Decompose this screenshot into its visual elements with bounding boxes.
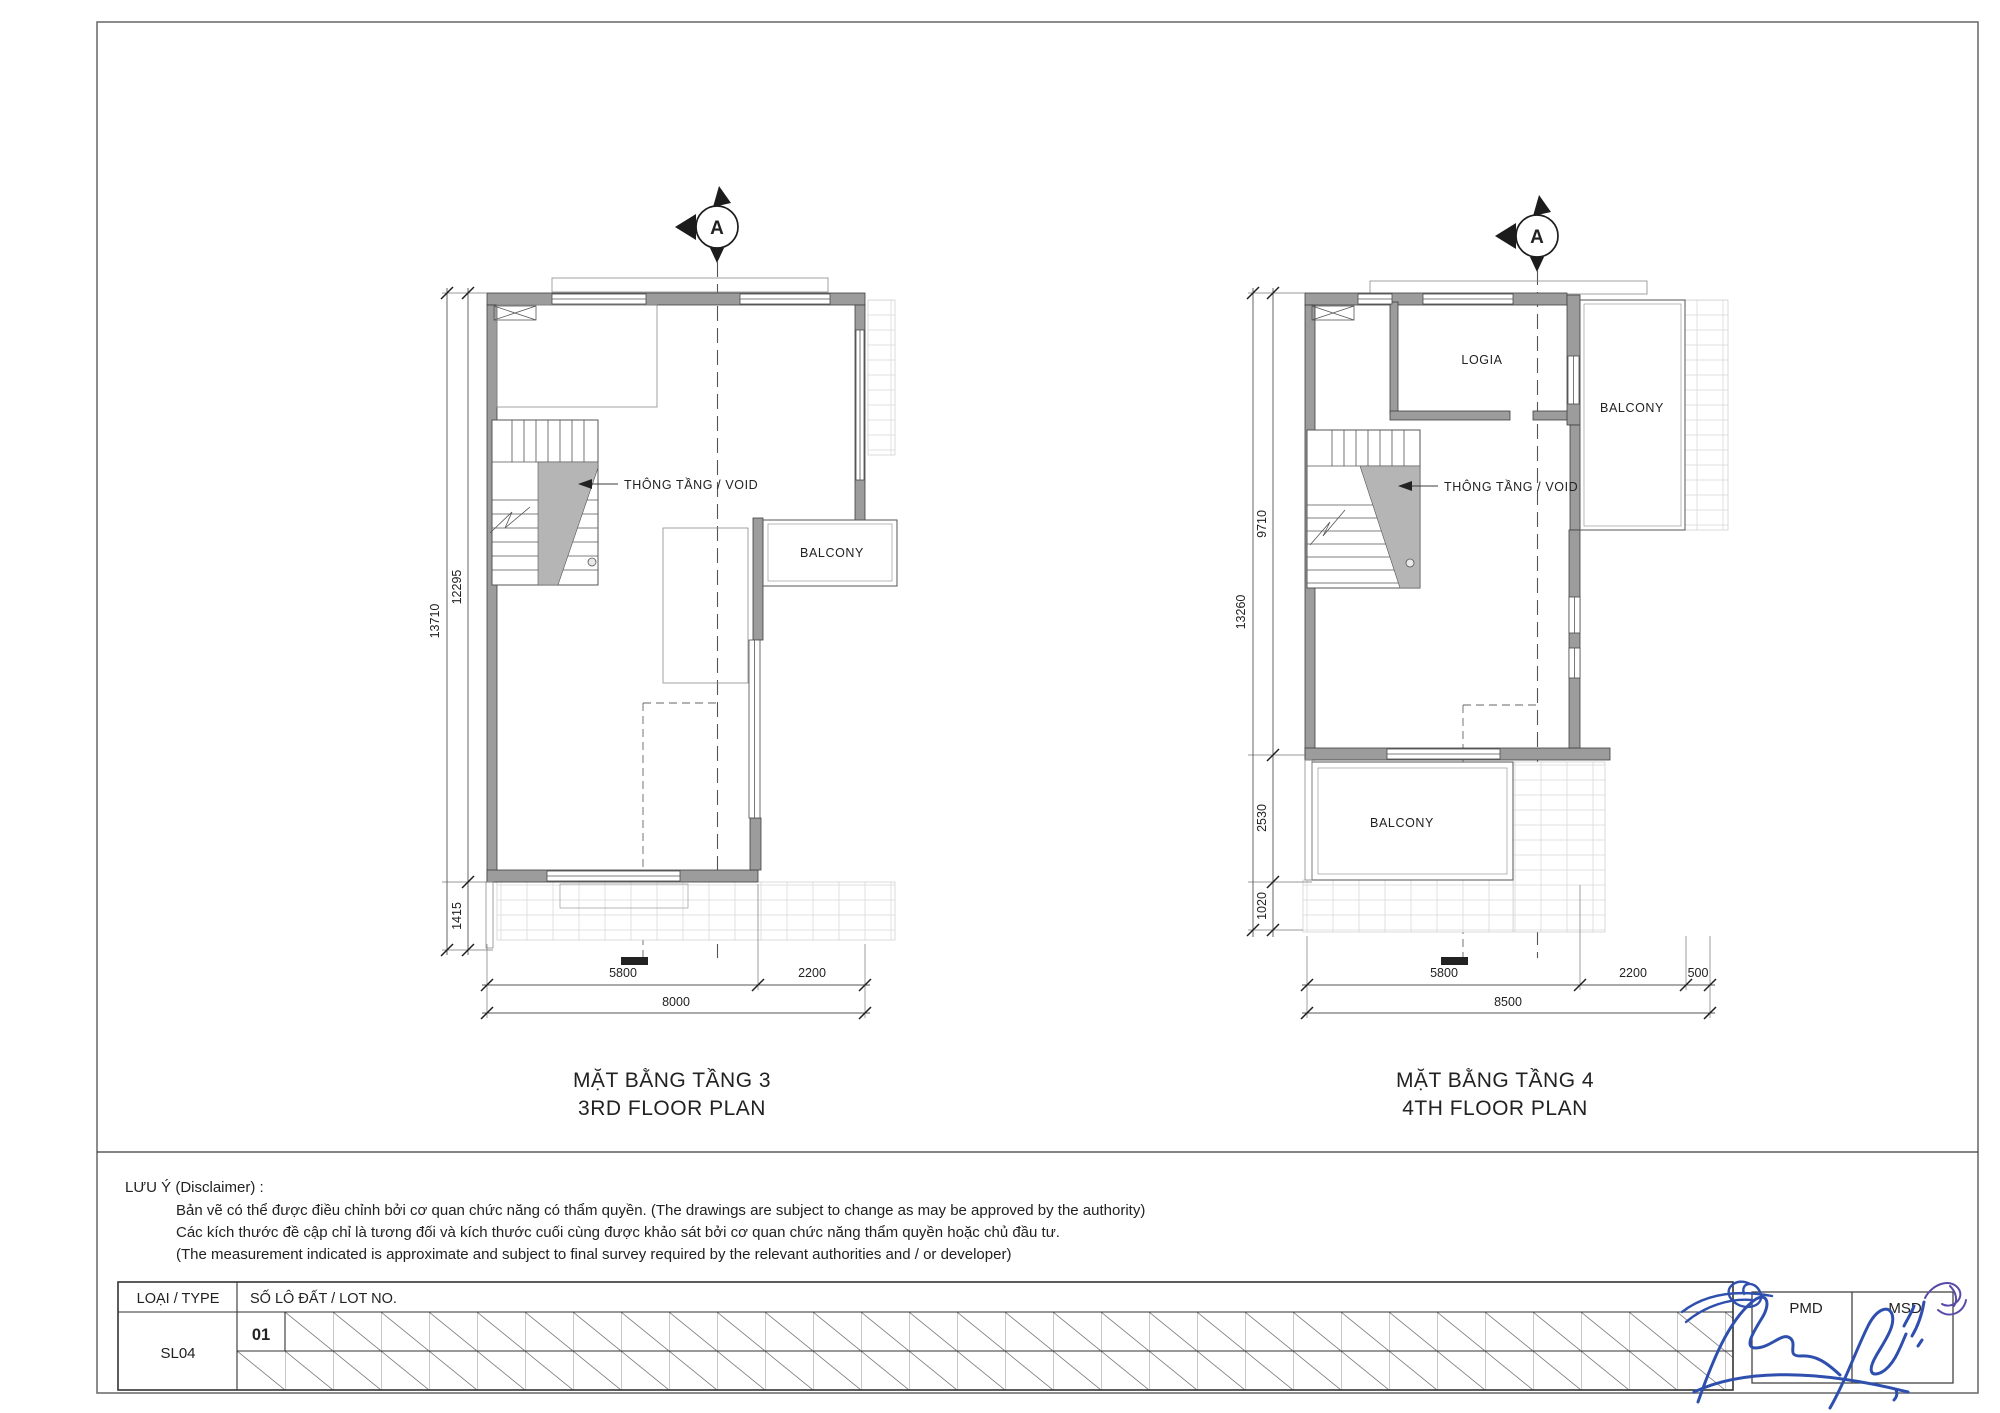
disclaimer-line-2: Các kích thước đề cập chỉ là tương đối v… bbox=[176, 1224, 1060, 1241]
dim-5800: 5800 bbox=[609, 966, 637, 980]
dim-8000: 8000 bbox=[662, 995, 690, 1009]
roof-hatch-bottom bbox=[1303, 880, 1513, 932]
plan4-title-en: 4TH FLOOR PLAN bbox=[1402, 1097, 1588, 1120]
dim-2200: 2200 bbox=[1619, 966, 1647, 980]
plan3-title-en: 3RD FLOOR PLAN bbox=[578, 1097, 766, 1120]
lot-grid-row-1 bbox=[285, 1312, 1733, 1351]
type-label: LOẠI / TYPE bbox=[137, 1291, 220, 1307]
dim-2200: 2200 bbox=[798, 966, 826, 980]
dim-12295: 12295 bbox=[450, 570, 464, 605]
plan3-title-vi: MẶT BẰNG TẦNG 3 bbox=[573, 1068, 771, 1092]
stairs bbox=[1307, 430, 1420, 588]
lot-label: SỐ LÔ ĐẤT / LOT NO. bbox=[250, 1289, 397, 1307]
lot-value: 01 bbox=[252, 1326, 270, 1344]
balcony-top: BALCONY bbox=[1580, 300, 1685, 530]
void-label: THÔNG TẦNG / VOID bbox=[1444, 479, 1578, 494]
balcony-label: BALCONY bbox=[800, 546, 864, 560]
section-letter: A bbox=[1530, 227, 1544, 248]
void-label: THÔNG TẦNG / VOID bbox=[624, 477, 758, 492]
dim-2530: 2530 bbox=[1255, 804, 1269, 832]
disclaimer-heading: LƯU Ý (Disclaimer) : bbox=[125, 1179, 264, 1196]
section-line-end-marker bbox=[621, 957, 648, 965]
dim-8500: 8500 bbox=[1494, 995, 1522, 1009]
drawing-sheet: A bbox=[0, 0, 2000, 1413]
section-line-end-marker bbox=[1441, 957, 1468, 965]
type-value: SL04 bbox=[160, 1345, 195, 1362]
dim-500: 500 bbox=[1688, 966, 1709, 980]
dim-5800: 5800 bbox=[1430, 966, 1458, 980]
roof-hatch-bottom bbox=[497, 882, 895, 940]
balcony: BALCONY bbox=[763, 520, 897, 586]
disclaimer-line-1: Bản vẽ có thể được điều chỉnh bởi cơ qua… bbox=[176, 1202, 1145, 1219]
dim-9710: 9710 bbox=[1255, 510, 1269, 538]
disclaimer-line-3: (The measurement indicated is approximat… bbox=[176, 1246, 1011, 1263]
section-letter: A bbox=[710, 218, 724, 239]
dim-13260: 13260 bbox=[1234, 595, 1248, 630]
roof-hatch-right bbox=[868, 300, 895, 455]
logia-label: LOGIA bbox=[1461, 353, 1502, 367]
sheet-border bbox=[97, 22, 1978, 1393]
dim-13710: 13710 bbox=[428, 604, 442, 639]
stairs bbox=[490, 420, 598, 585]
balcony-bottom-label: BALCONY bbox=[1370, 816, 1434, 830]
approver-pmd: PMD bbox=[1789, 1300, 1823, 1317]
dim-1415: 1415 bbox=[450, 902, 464, 930]
plan4-title-vi: MẶT BẰNG TẦNG 4 bbox=[1396, 1068, 1594, 1092]
balcony-bottom: BALCONY bbox=[1305, 760, 1513, 880]
dim-1020: 1020 bbox=[1255, 892, 1269, 920]
lot-grid-row-2 bbox=[237, 1351, 1733, 1390]
roof-hatch-right bbox=[1685, 300, 1728, 530]
roof-hatch-corner bbox=[1513, 762, 1605, 932]
balcony-top-label: BALCONY bbox=[1600, 401, 1664, 415]
